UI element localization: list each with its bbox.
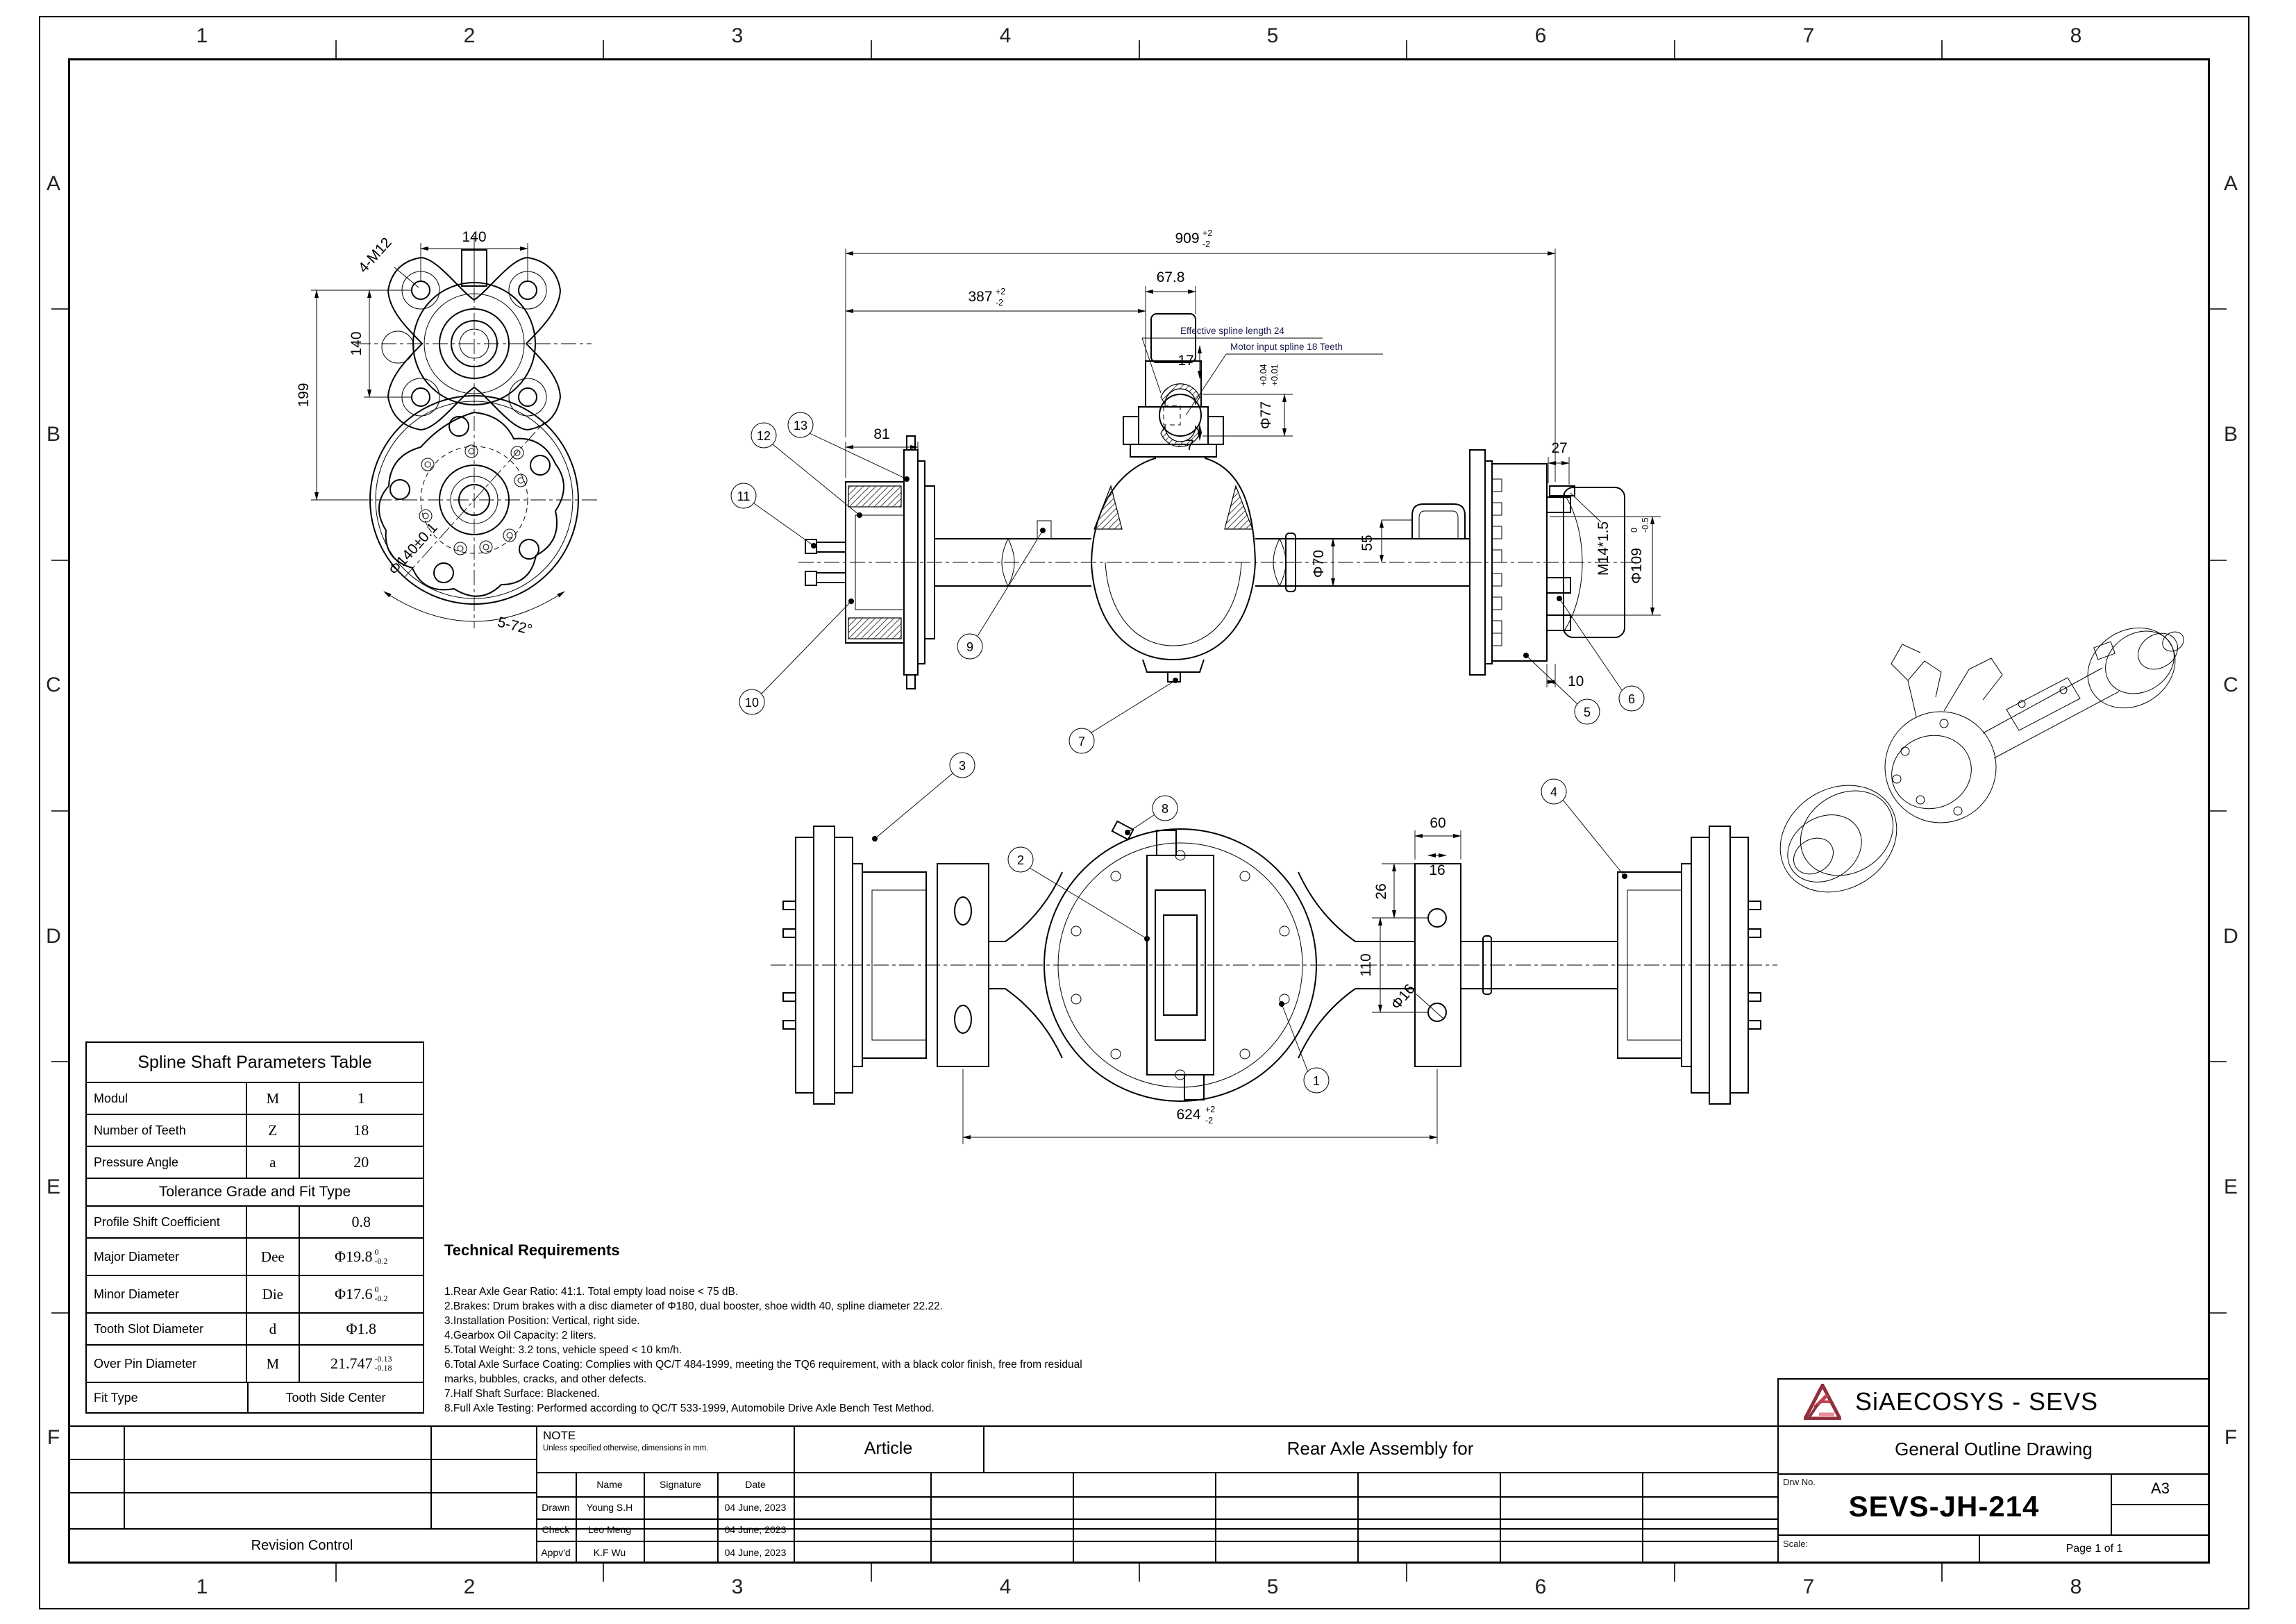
spline-table-title: Spline Shaft Parameters Table [87,1043,423,1082]
dim-side-67-8: 67.8 [1157,269,1185,285]
technical-requirements: Technical Requirements 1.Rear Axle Gear … [444,1241,1104,1416]
dim-side-909-tu: +2 [1203,228,1212,238]
balloon-10: 10 [739,598,854,714]
value-main: Φ19.8 [335,1248,373,1266]
row-symbol: Dee [246,1239,298,1275]
tol-lower: -0.2 [375,1257,388,1266]
balloon-7: 7 [1069,678,1178,753]
sig-role: Check [536,1518,576,1541]
row-symbol: Die [246,1276,298,1312]
title-block-line [1215,1472,1216,1564]
row-symbol: d [246,1314,298,1344]
row-value: Φ19.8 0-0.2 [299,1239,423,1275]
value-main: Φ17.6 [335,1285,373,1303]
plan-view: 624 +2 -2 26 110 60 16 Φ16 3 [771,753,1777,1144]
table-row: Fit Type Tooth Side Center [87,1382,423,1412]
sig-header-date: Date [717,1472,794,1496]
dim-front-4m12: 4-M12 [355,235,395,276]
table-row: Pressure Angle a 20 [87,1146,423,1178]
company-logo [1804,1384,1841,1423]
sig-date: 04 June, 2023 [717,1496,794,1518]
table-row: Minor Diameter Die Φ17.6 0-0.2 [87,1275,423,1312]
article-value: Rear Axle Assembly for [983,1425,1777,1472]
row-symbol [246,1207,298,1237]
row-value: 18 [299,1115,423,1146]
svg-text:7: 7 [1078,735,1085,748]
sig-role: Drawn [536,1496,576,1518]
dim-plan-624-tl: -2 [1205,1116,1213,1125]
dim-plan-624-tu: +2 [1205,1105,1215,1114]
dim-plan-16: 16 [1429,862,1445,878]
dim-front-140-left: 140 [349,331,364,355]
row-value: 0.8 [299,1207,423,1237]
title-block-line [930,1472,932,1564]
side-view: 81 909 +2 -2 387 +2 -2 67.8 17 7 Φ77 +0.… [731,228,1661,753]
dim-front-199: 199 [296,383,312,407]
dim-side-10: 10 [1568,673,1584,689]
row-value: Tooth Side Center [247,1383,423,1412]
isometric-view [1760,612,2190,913]
revision-control-label: Revision Control [68,1528,536,1564]
table-row: Modul M 1 [87,1082,423,1114]
dim-side-phi77-tu: +0.04 [1259,364,1268,386]
page-indicator: Page 1 of 1 [1979,1534,2210,1564]
row-value: Φ17.6 0-0.2 [299,1276,423,1312]
title-block-line [124,1425,125,1528]
technical-requirements-title: Technical Requirements [444,1241,1104,1259]
title-block-line [2111,1504,2210,1505]
dim-plan-60: 60 [1430,815,1446,831]
row-label: Pressure Angle [87,1147,246,1178]
tol-lower: -0.18 [375,1364,392,1373]
balloon-11: 11 [731,483,816,549]
paper-size: A3 [2111,1473,2210,1504]
row-value: Φ1.8 [299,1314,423,1344]
dim-side-81: 81 [873,426,889,442]
svg-text:2: 2 [1017,853,1024,867]
row-label: Tooth Slot Diameter [87,1314,246,1344]
dim-side-phi70: Φ70 [1311,550,1327,578]
note-motor-input-spline: Motor input spline 18 Teeth [1230,342,1343,352]
dim-side-387-tu: +2 [996,287,1005,296]
row-value: 1 [299,1083,423,1114]
title-block-line [1357,1472,1359,1564]
tech-req-item: 4.Gearbox Oil Capacity: 2 liters. [444,1328,1104,1343]
svg-text:12: 12 [757,429,771,443]
doc-title: General Outline Drawing [1777,1425,2210,1473]
dim-side-909-tl: -2 [1203,240,1210,249]
dim-side-387-tl: -2 [996,298,1003,308]
drawing-number: SEVS-JH-214 [1777,1479,2111,1534]
table-row: Number of Teeth Z 18 [87,1114,423,1146]
dim-plan-624: 624 [1176,1107,1200,1123]
row-symbol: a [246,1147,298,1178]
tech-req-item: 6.Total Axle Surface Coating: Complies w… [444,1357,1104,1387]
value-main: 21.747 [330,1355,373,1373]
dim-plan-26: 26 [1373,883,1389,899]
table-row: Tooth Slot Diameter d Φ1.8 [87,1312,423,1344]
note-text: Unless specified otherwise, dimensions i… [543,1444,708,1453]
tech-req-item: 3.Installation Position: Vertical, right… [444,1314,1104,1328]
balloon-9: 9 [957,528,1046,659]
dim-side-phi109-tu: 0 [1629,528,1639,533]
title-block-line [68,1492,536,1493]
dim-front-140-top: 140 [462,229,486,245]
table-row: Profile Shift Coefficient 0.8 [87,1205,423,1237]
dim-side-27: 27 [1551,440,1567,456]
tech-req-item: 2.Brakes: Drum brakes with a disc diamet… [444,1299,1104,1314]
row-label: Over Pin Diameter [87,1346,246,1382]
drawing-sheet: 1 2 3 4 5 6 7 8 1 2 3 4 5 6 7 8 A B C D … [0,0,2296,1624]
svg-text:6: 6 [1628,692,1635,706]
sig-name: Leo Meng [576,1518,644,1541]
row-label: Modul [87,1083,246,1114]
title-block-line [1642,1472,1643,1564]
scale-label: Scale: [1783,1539,1808,1549]
note-effective-spline-length: Effective spline length 24 [1180,326,1284,336]
svg-text:9: 9 [966,640,973,654]
row-symbol: Z [246,1115,298,1146]
tech-req-item: 8.Full Axle Testing: Performed according… [444,1401,1104,1416]
svg-text:11: 11 [737,489,751,503]
spline-parameters-table: Spline Shaft Parameters Table Modul M 1 … [85,1041,424,1414]
sig-name: K.F Wu [576,1541,644,1564]
note-box: NOTE Unless specified otherwise, dimensi… [543,1429,708,1453]
tech-req-item: 1.Rear Axle Gear Ratio: 41:1. Total empt… [444,1284,1104,1299]
tech-req-item: 7.Half Shaft Surface: Blackened. [444,1387,1104,1401]
tolerance-header: Tolerance Grade and Fit Type [87,1179,423,1205]
balloon-6: 6 [1557,596,1644,711]
row-label: Profile Shift Coefficient [87,1207,246,1237]
row-label: Number of Teeth [87,1115,246,1146]
sig-header-name: Name [576,1472,644,1496]
sig-date: 04 June, 2023 [717,1518,794,1541]
sig-header-signature: Signature [644,1472,717,1496]
dim-side-7: 7 [1186,437,1194,453]
dim-side-17: 17 [1178,353,1193,369]
tech-req-item: 5.Total Weight: 3.2 tons, vehicle speed … [444,1343,1104,1357]
title-block-line [1500,1472,1501,1564]
dim-side-phi77-tl: +0.01 [1270,364,1280,386]
row-symbol: M [246,1083,298,1114]
row-label: Major Diameter [87,1239,246,1275]
article-label: Article [794,1425,983,1472]
row-label: Minor Diameter [87,1276,246,1312]
sig-role: Appv'd [536,1541,576,1564]
dim-side-909: 909 [1175,231,1199,246]
svg-text:8: 8 [1162,802,1168,816]
dim-side-m14: M14*1.5 [1595,521,1611,576]
title-block-line [1073,1472,1074,1564]
dim-side-55: 55 [1359,535,1375,551]
dim-plan-110: 110 [1358,953,1374,976]
note-title: NOTE [543,1429,708,1443]
svg-text:13: 13 [794,419,807,433]
dim-plan-phi16: Φ16 [1388,981,1418,1013]
svg-text:10: 10 [745,696,759,710]
sig-name: Young S.H [576,1496,644,1518]
dim-side-phi109-tl: -0.5 [1641,517,1650,533]
table-row: Major Diameter Dee Φ19.8 0-0.2 [87,1237,423,1275]
title-block-line [1777,1378,2210,1380]
dim-front-angle: 5-72° [496,614,534,638]
table-subheader: Tolerance Grade and Fit Type [87,1178,423,1205]
dim-side-387: 387 [968,289,992,305]
dim-side-phi77: Φ77 [1258,401,1274,429]
title-block-line [68,1459,536,1460]
row-label: Fit Type [87,1383,247,1412]
svg-text:4: 4 [1550,785,1557,799]
company-name: SiAECOSYS - SEVS [1855,1382,2098,1422]
row-value: 21.747 -0.13-0.18 [299,1346,423,1382]
svg-text:5: 5 [1584,705,1591,719]
svg-text:3: 3 [959,759,966,773]
title-block-line [430,1425,432,1528]
balloon-5: 5 [1523,653,1600,724]
svg-text:1: 1 [1313,1074,1320,1088]
balloon-4: 4 [1541,779,1627,879]
dim-side-phi109: Φ109 [1629,548,1645,584]
row-symbol: M [246,1346,298,1382]
sig-date: 04 June, 2023 [717,1541,794,1564]
table-row: Over Pin Diameter M 21.747 -0.13-0.18 [87,1344,423,1382]
front-view: 140 140 199 4-M12 Φ140±0.1 5-72° [296,229,598,638]
balloon-3: 3 [872,753,975,842]
tol-lower: -0.2 [375,1294,388,1303]
row-value: 20 [299,1147,423,1178]
